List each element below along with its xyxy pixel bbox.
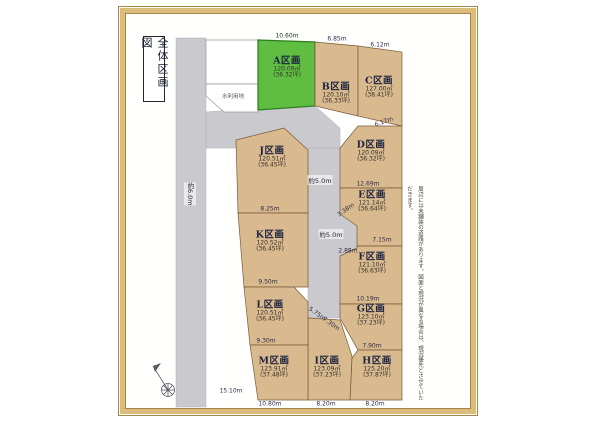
lot-label-B: B区画 120.10㎡ (36.33坪) bbox=[322, 83, 351, 106]
lot-label-E: E区画 121.14㎡ (36.64坪) bbox=[358, 191, 386, 214]
dim-label: 8.20m bbox=[316, 401, 335, 408]
lot-label-I: I区画 123.09㎡ (37.23坪) bbox=[313, 357, 341, 380]
lot-label-L: L区画 120.51㎡ (36.45坪) bbox=[256, 301, 284, 324]
reserved-area-label: 水利用地 bbox=[222, 92, 244, 100]
lot-label-J: J区画 120.51㎡ (36.45坪) bbox=[258, 147, 286, 170]
dim-label: 15.10m bbox=[219, 388, 242, 395]
lot-J-shape bbox=[236, 128, 308, 213]
dim-label: 12.69m bbox=[356, 181, 379, 188]
dim-label: 9.30m bbox=[256, 338, 275, 345]
lot-label-D: D区画 120.09㎡ (36.32坪) bbox=[357, 141, 386, 164]
north-compass-icon bbox=[153, 363, 175, 397]
road-width-label-mid-upper: 約5.0m bbox=[307, 175, 332, 185]
lot-label-G: G区画 123.10㎡ (37.23坪) bbox=[357, 305, 386, 328]
lot-label-H: H区画 125.20㎡ (37.87坪) bbox=[362, 357, 391, 380]
dim-label: 8.20m bbox=[365, 401, 384, 408]
vacant-box-shape bbox=[206, 40, 258, 84]
lot-label-M: M区画 123.91㎡ (37.48坪) bbox=[258, 357, 289, 380]
lot-label-F: F区画 121.10㎡ (36.63坪) bbox=[358, 253, 386, 276]
lot-label-A: A区画 120.09㎡ (36.32坪) bbox=[273, 57, 301, 80]
dim-label: 10.19m bbox=[356, 296, 379, 303]
dim-label: 10.60m bbox=[275, 33, 298, 40]
dim-label: 8.25m bbox=[260, 206, 279, 213]
page-title: 全体区画図 bbox=[143, 36, 165, 102]
disclaimer-text: 周辺には未舗装の道路があります。図面と現況が異なる場合は、現況優先とさせていただ… bbox=[403, 186, 425, 404]
dim-label: 10.80m bbox=[258, 401, 281, 408]
dim-label: 6.85m bbox=[327, 36, 346, 43]
site-plan-page: 全体区画図 水利用地 A区画 120.09㎡ (36.32坪) B区画 120.… bbox=[0, 0, 600, 424]
road-width-label-left: 約6.0m bbox=[184, 182, 196, 205]
road-left-shape bbox=[176, 38, 206, 407]
dim-label: 9.50m bbox=[258, 279, 277, 286]
lot-label-K: K区画 120.52㎡ (36.45坪) bbox=[256, 231, 285, 254]
dim-label: 2.88m bbox=[338, 248, 357, 255]
dim-label: 6.12m bbox=[370, 42, 389, 49]
dim-label: 7.15m bbox=[372, 237, 391, 244]
lot-label-C: C区画 127.00㎡ (38.41坪) bbox=[365, 77, 393, 100]
dim-label: 7.90m bbox=[362, 343, 381, 350]
road-width-label-mid-lower: 約5.0m bbox=[318, 229, 343, 239]
